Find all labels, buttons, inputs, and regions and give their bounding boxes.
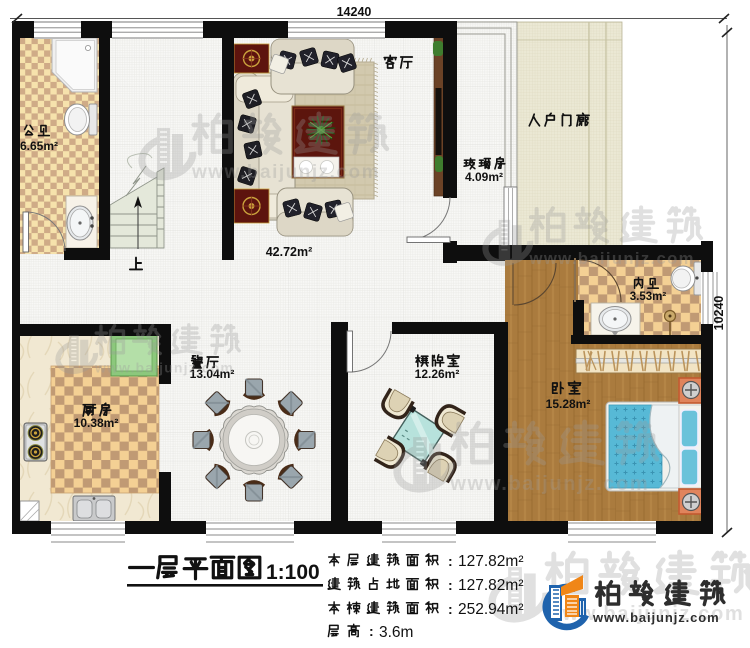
- svg-text:10240: 10240: [712, 296, 726, 331]
- svg-text:1:100: 1:100: [266, 561, 320, 584]
- svg-text:3.53m²: 3.53m²: [630, 291, 667, 303]
- svg-text:14240: 14240: [337, 5, 372, 19]
- svg-text:127.82m²: 127.82m²: [458, 553, 523, 570]
- svg-text:15.28m²: 15.28m²: [546, 397, 591, 411]
- svg-text:www.baijunjz.com: www.baijunjz.com: [94, 359, 234, 375]
- svg-text:252.94m²: 252.94m²: [458, 601, 523, 618]
- svg-text:www.baijunjz.com: www.baijunjz.com: [529, 249, 695, 268]
- svg-text::: :: [448, 601, 453, 617]
- svg-text:3.6m: 3.6m: [379, 624, 413, 641]
- svg-text:www.baijunjz.com: www.baijunjz.com: [191, 162, 380, 183]
- svg-text:127.82m²: 127.82m²: [458, 577, 523, 594]
- svg-text:www.baijunjz.com: www.baijunjz.com: [592, 610, 720, 625]
- svg-text:6.65m²: 6.65m²: [20, 139, 58, 153]
- svg-text:42.72m²: 42.72m²: [266, 245, 313, 259]
- svg-text:12.26m²: 12.26m²: [415, 367, 460, 381]
- svg-text::: :: [448, 577, 453, 593]
- svg-text:10.38m²: 10.38m²: [74, 416, 119, 430]
- svg-text:www.baijunjz.com: www.baijunjz.com: [449, 473, 649, 495]
- svg-text:4.09m²: 4.09m²: [465, 170, 503, 184]
- svg-text::: :: [448, 553, 453, 569]
- svg-text::: :: [369, 623, 374, 639]
